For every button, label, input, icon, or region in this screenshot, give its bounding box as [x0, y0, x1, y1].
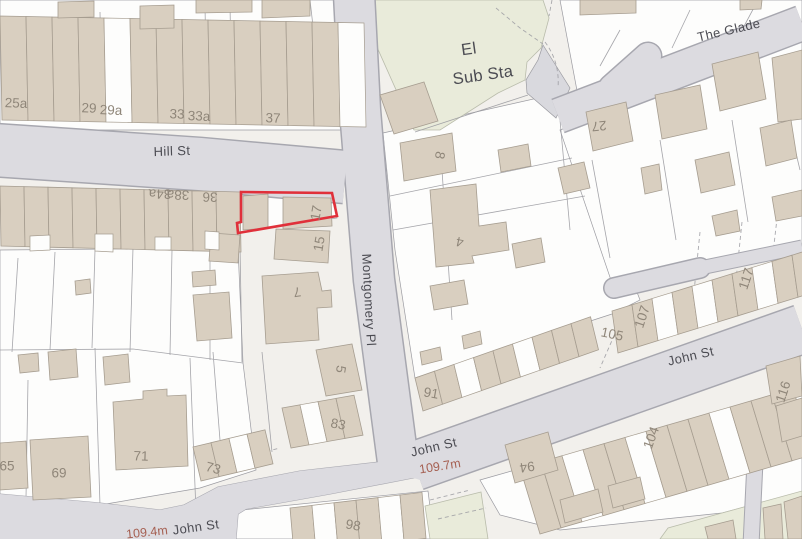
map-label-number: 69 — [51, 466, 66, 481]
terrace-unit — [312, 22, 340, 127]
map-label-number: 36 — [202, 189, 217, 204]
map-label-number: 17 — [307, 204, 324, 221]
terrace-unit — [130, 19, 158, 124]
map-label-number: 15 — [310, 235, 327, 252]
map-canvas[interactable]: Hill StMontgomery PlJohn StJohn StJohn S… — [0, 0, 802, 539]
map-label-number: 33 — [169, 106, 185, 122]
map-label-number: 83 — [329, 415, 346, 432]
terrace-unit — [48, 187, 73, 248]
terrace-unit — [234, 21, 262, 126]
map-label-number: 71 — [133, 448, 149, 464]
map-label-number: 27 — [591, 118, 607, 134]
map-label-number: 33a — [188, 108, 212, 124]
map-label-number: 91 — [422, 384, 439, 401]
terrace-unit — [120, 189, 145, 250]
map-label-number: 29 — [81, 100, 97, 116]
map-label-number: 65 — [0, 459, 15, 474]
terrace-unit — [208, 20, 236, 125]
map-label-number: 94 — [518, 458, 535, 475]
map-label-number: 25a — [5, 95, 29, 111]
map-label-number: 37 — [265, 110, 281, 126]
terrace-unit — [26, 17, 54, 122]
terrace-unit — [338, 23, 366, 128]
terrace-unit — [72, 188, 97, 249]
map-label-number: 98 — [344, 516, 361, 533]
map-viewport[interactable]: Hill StMontgomery PlJohn StJohn StJohn S… — [0, 0, 802, 539]
terrace-unit — [400, 492, 426, 539]
map-label-street: Hill St — [153, 143, 190, 159]
map-label-number: 29a — [100, 102, 124, 118]
terrace-unit — [52, 17, 80, 122]
terrace-unit — [378, 495, 404, 539]
map-label-area: El — [460, 39, 478, 59]
map-label-number: 38a — [166, 187, 189, 202]
terrace-unit — [286, 22, 314, 127]
terrace-unit — [0, 186, 25, 247]
